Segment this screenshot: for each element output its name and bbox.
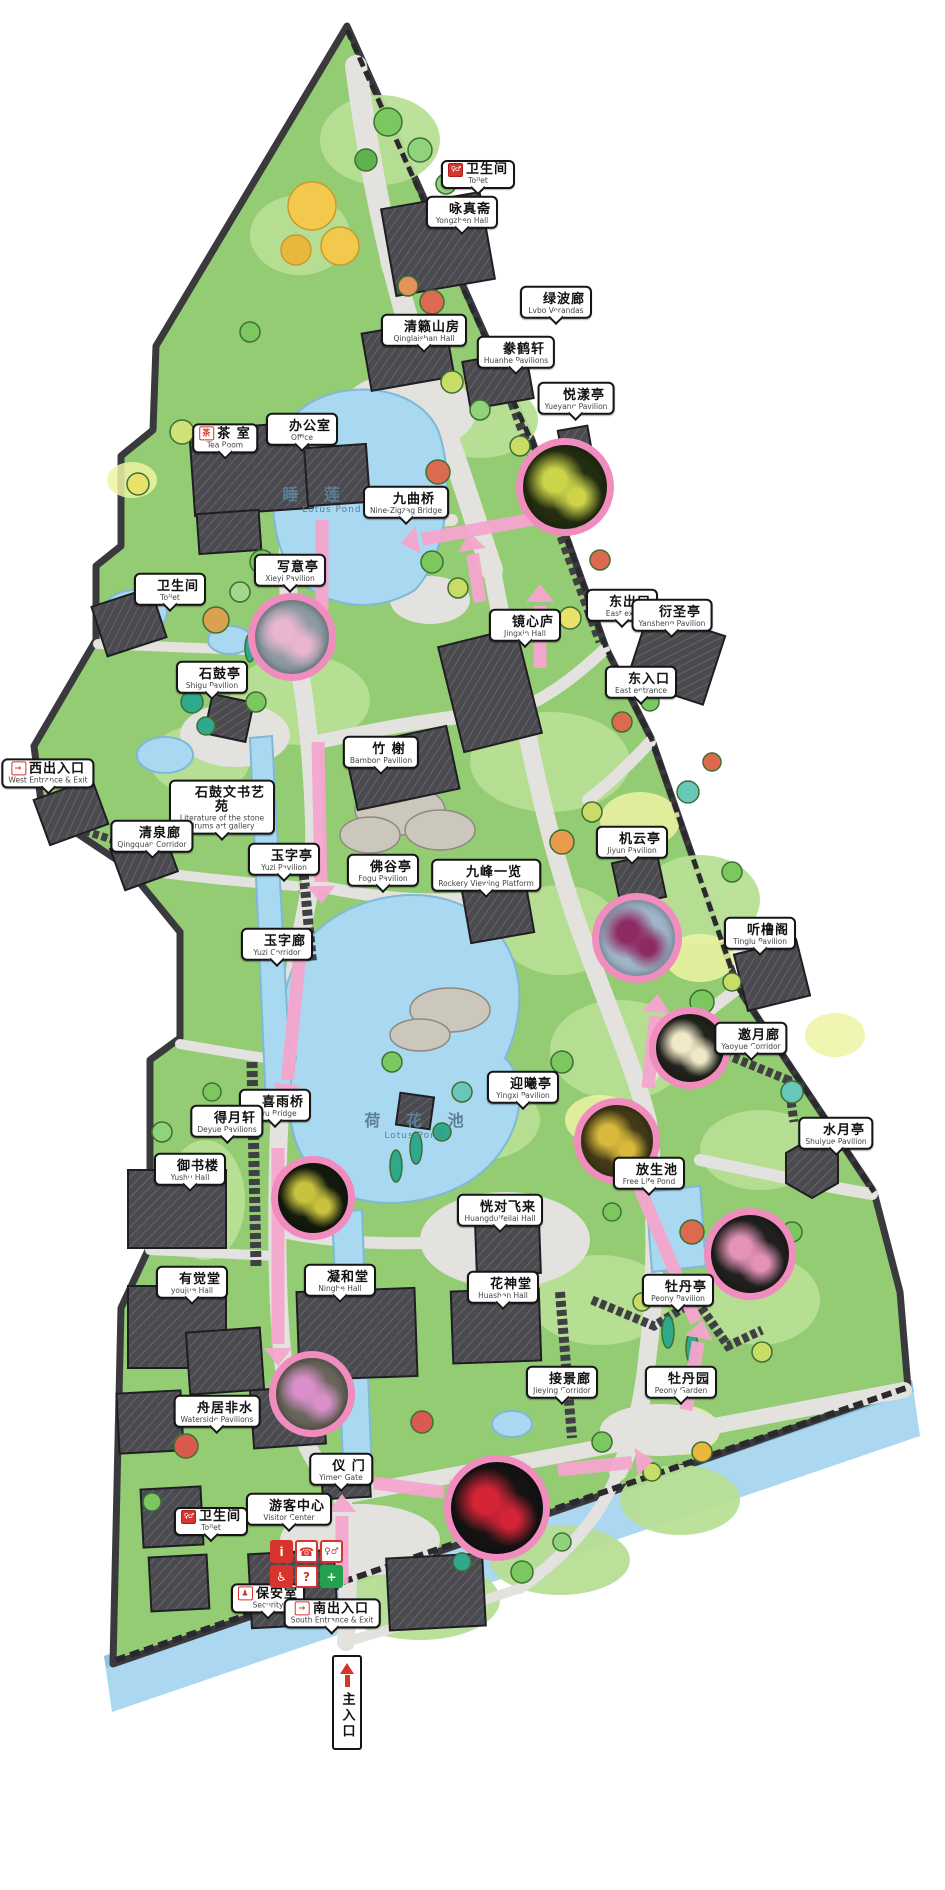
label-en: Jiyun Pavilion	[603, 847, 661, 855]
photo-spot	[269, 1351, 355, 1437]
pond-name: 荷 花 池 Lotus Pond	[354, 1107, 473, 1141]
label-zh: 卫生间	[141, 576, 199, 594]
label-en: Yushu Hall	[161, 1174, 219, 1182]
label-zh: 迎曦亭	[494, 1074, 552, 1092]
map-label: 机云亭 Jiyun Pavilion	[596, 826, 668, 859]
photo-spot	[444, 1455, 550, 1561]
map-label: 咏真斋 Yongzhen Hall	[426, 196, 498, 229]
map-label: 牡丹园 Peony Garden	[645, 1366, 717, 1399]
label-en: Xieyi Pavilion	[261, 575, 319, 583]
exit-icon: →	[11, 761, 26, 775]
label-en: Peony Garden	[652, 1387, 710, 1395]
label-zh: 听橹阁	[731, 920, 789, 938]
label-en: Nine-Zigzag Bridge	[370, 507, 442, 515]
map-label: 玉字廊 Yuzi Corridor	[241, 928, 313, 961]
label-en: Fogu Pavilion	[354, 875, 412, 883]
label-zh: 水月亭	[805, 1120, 866, 1138]
label-zh: 仪 门	[316, 1456, 366, 1474]
label-zh: 镜心庐	[496, 612, 554, 630]
map-label: 恍对飞来 Huangduifeilai Hall	[457, 1194, 543, 1227]
label-zh: →西出入口	[8, 761, 87, 776]
photo-spot	[271, 1156, 355, 1240]
exit-icon: →	[295, 1601, 310, 1615]
label-en: South Entrance & Exit	[291, 1616, 374, 1624]
pond-name-en: Lotus Pond	[354, 1131, 473, 1141]
label-zh: 石鼓亭	[183, 664, 241, 682]
label-zh: 舟居非水	[181, 1398, 254, 1416]
label-zh: 玉字亭	[255, 846, 313, 864]
label-zh: ♀♂卫生间	[181, 1510, 241, 1524]
photo-spot	[704, 1208, 796, 1300]
label-zh: 牡丹园	[652, 1369, 710, 1387]
label-zh: 放生池	[620, 1160, 678, 1178]
label-en: East entrance	[612, 687, 670, 695]
label-zh: 玉字廊	[248, 931, 306, 949]
label-zh: 九曲桥	[370, 489, 442, 507]
map-label: →南出入口 South Entrance & Exit	[284, 1598, 381, 1628]
toilet-icon: ♀♂	[181, 1510, 196, 1524]
label-zh: 游客中心	[253, 1496, 325, 1514]
map-label: 牡丹亭 Peony Pavilion	[642, 1274, 714, 1307]
service-icon: ♿	[270, 1565, 293, 1588]
label-zh: 清籁山房	[388, 317, 460, 335]
map-label: 清泉廊 Qingquan Corridor	[110, 820, 193, 853]
map-label: 九峰一览 Rockery Viewing Platform	[431, 859, 541, 892]
map-label: 得月轩 Deyue Pavilions	[190, 1105, 263, 1138]
label-zh: 竹 榭	[350, 739, 412, 757]
photo-spot	[516, 438, 614, 536]
map-label: 东入口 East entrance	[605, 666, 677, 699]
label-zh: 石鼓文书艺苑	[176, 783, 268, 815]
label-zh: 清泉廊	[117, 823, 186, 841]
map-label: 有觉堂 youjue Hall	[156, 1266, 228, 1299]
map-label: 邀月廊 Yaoyue Corridor	[714, 1022, 787, 1055]
label-en: Peony Pavilion	[649, 1295, 707, 1303]
main-entrance-marker: 主入口	[332, 1655, 362, 1750]
label-en: West Entrance & Exit	[8, 776, 87, 784]
label-zh: 御书楼	[161, 1156, 219, 1174]
map-label: 清籁山房 Qinglaishan Hall	[381, 314, 467, 347]
main-entrance-label: 主入口	[338, 1692, 357, 1740]
label-en: Toilet	[448, 177, 508, 185]
map-label: ♀♂卫生间 Toilet	[441, 160, 515, 189]
toilet-icon: ♀♂	[448, 163, 463, 177]
map-label: 茶茶 室 Tea Room	[192, 423, 258, 453]
label-zh: 佛谷亭	[354, 857, 412, 875]
map-label: 悦漾亭 Yueyang Pavilion	[538, 382, 615, 415]
up-arrow-icon	[345, 1675, 350, 1687]
map-label: 九曲桥 Nine-Zigzag Bridge	[363, 486, 449, 519]
map-label: 玉字亭 Yuzi Pavilion	[248, 843, 320, 876]
map-label: 竹 榭 Bamboo Pavilion	[343, 736, 419, 769]
label-zh: 得月轩	[197, 1108, 256, 1126]
label-en: Deyue Pavilions	[197, 1126, 256, 1134]
label-en: Yansheng Pavilion	[639, 620, 706, 628]
label-zh: 写意亭	[261, 557, 319, 575]
map-label: 镜心庐 Jingxin Hall	[489, 609, 561, 642]
tea-icon: 茶	[199, 426, 214, 440]
label-en: Qingquan Corridor	[117, 841, 186, 849]
label-en: Qinglaishan Hall	[388, 335, 460, 343]
security-icon: ♟	[238, 1586, 253, 1600]
map-label: 办公室 Office	[266, 413, 338, 446]
label-zh: 牡丹亭	[649, 1277, 707, 1295]
label-en: Bamboo Pavilion	[350, 757, 412, 765]
label-zh: 东入口	[612, 669, 670, 687]
label-en: Office	[273, 434, 331, 442]
map-label: 卫生间 Toilet	[134, 573, 206, 606]
service-icon: ♀♂	[320, 1540, 343, 1563]
map-label: 衍圣亭 Yansheng Pavilion	[632, 599, 713, 632]
map-label: 迎曦亭 Yingxi Pavilion	[487, 1071, 559, 1104]
label-zh: 绿波廊	[527, 289, 585, 307]
label-zh: 悦漾亭	[545, 385, 608, 403]
label-en: Huangduifeilai Hall	[464, 1215, 536, 1223]
label-zh: 接景廊	[533, 1369, 591, 1387]
label-en: Shigu Pavilion	[183, 682, 241, 690]
map-label: 舟居非水 Waterside Pavilions	[174, 1395, 261, 1428]
map-label: 绿波廊 Lvbo Verandas	[520, 286, 592, 319]
label-zh: 九峰一览	[438, 862, 534, 880]
map-label: ♀♂卫生间 Toilet	[174, 1507, 248, 1536]
label-zh: →南出入口	[291, 1601, 374, 1616]
label-en: Yongzhen Hall	[433, 217, 491, 225]
label-zh: 咏真斋	[433, 199, 491, 217]
service-icon: ?	[295, 1565, 318, 1588]
label-zh: 凝和堂	[311, 1267, 369, 1285]
label-en: Yingxi Pavilion	[494, 1092, 552, 1100]
map-label: 接景廊 Jieying Corridor	[526, 1366, 598, 1399]
label-en: Shuiyue Pavilion	[805, 1138, 866, 1146]
service-icon: ☎	[295, 1540, 318, 1563]
label-en: Free Life Pond	[620, 1178, 678, 1186]
photo-spot	[248, 593, 336, 681]
label-en: Toilet	[141, 594, 199, 602]
label-en: Waterside Pavilions	[181, 1416, 254, 1424]
label-zh: 邀月廊	[721, 1025, 780, 1043]
label-en: Tinglu Pavilion	[731, 938, 789, 946]
map-label: 水月亭 Shuiyue Pavilion	[798, 1117, 873, 1150]
label-zh: ♀♂卫生间	[448, 163, 508, 177]
label-zh: 花神堂	[474, 1274, 532, 1292]
label-en: Jingxin Hall	[496, 630, 554, 638]
label-en: Visitor Center	[253, 1514, 325, 1522]
label-en: Yimen Gate	[316, 1474, 366, 1482]
label-zh: 恍对飞来	[464, 1197, 536, 1215]
label-en: Toilet	[181, 1524, 241, 1532]
map-label: 御书楼 Yushu Hall	[154, 1153, 226, 1186]
label-en: Yueyang Pavilion	[545, 403, 608, 411]
label-zh: 有觉堂	[163, 1269, 221, 1287]
map-label: 凝和堂 Ninghe Hall	[304, 1264, 376, 1297]
label-en: Yuzi Pavilion	[255, 864, 313, 872]
label-en: Yaoyue Corridor	[721, 1043, 780, 1051]
map-label: 放生池 Free Life Pond	[613, 1157, 685, 1190]
map-label: 石鼓亭 Shigu Pavilion	[176, 661, 248, 694]
pond-name-zh: 荷 花 池	[354, 1107, 473, 1131]
map-artwork	[0, 0, 945, 1890]
visitor-services-panel: i☎♀♂♿?+	[270, 1540, 343, 1588]
label-zh: 机云亭	[603, 829, 661, 847]
photo-spot	[592, 893, 682, 983]
label-en: Ninghe Hall	[311, 1285, 369, 1293]
label-zh: 茶茶 室	[199, 426, 251, 441]
map-label: 游客中心 Visitor Center	[246, 1493, 332, 1526]
map-label: →西出入口 West Entrance & Exit	[1, 758, 94, 788]
up-arrow-icon	[340, 1663, 354, 1674]
map-label: 写意亭 Xieyi Pavilion	[254, 554, 326, 587]
label-zh: 办公室	[273, 416, 331, 434]
map-label: 豢鹤轩 Huanhe Pavilions	[477, 336, 555, 369]
park-map: ♀♂卫生间 Toilet 咏真斋 Yongzhen Hall 绿波廊 Lvbo …	[0, 0, 945, 1890]
map-label: 仪 门 Yimen Gate	[309, 1453, 373, 1486]
label-zh: 豢鹤轩	[484, 339, 548, 357]
label-en: Rockery Viewing Platform	[438, 880, 534, 888]
label-en: Yuzi Corridor	[248, 949, 306, 957]
service-icon: +	[320, 1565, 343, 1588]
label-en: Tea Room	[199, 441, 251, 449]
label-en: Huashen Hall	[474, 1292, 532, 1300]
label-zh: 衍圣亭	[639, 602, 706, 620]
label-en: youjue Hall	[163, 1287, 221, 1295]
map-label: 听橹阁 Tinglu Pavilion	[724, 917, 796, 950]
label-en: Lvbo Verandas	[527, 307, 585, 315]
map-label: 佛谷亭 Fogu Pavilion	[347, 854, 419, 887]
label-en: Huanhe Pavilions	[484, 357, 548, 365]
map-label: 花神堂 Huashen Hall	[467, 1271, 539, 1304]
service-icon: i	[270, 1540, 293, 1563]
label-en: Jieying Corridor	[533, 1387, 591, 1395]
